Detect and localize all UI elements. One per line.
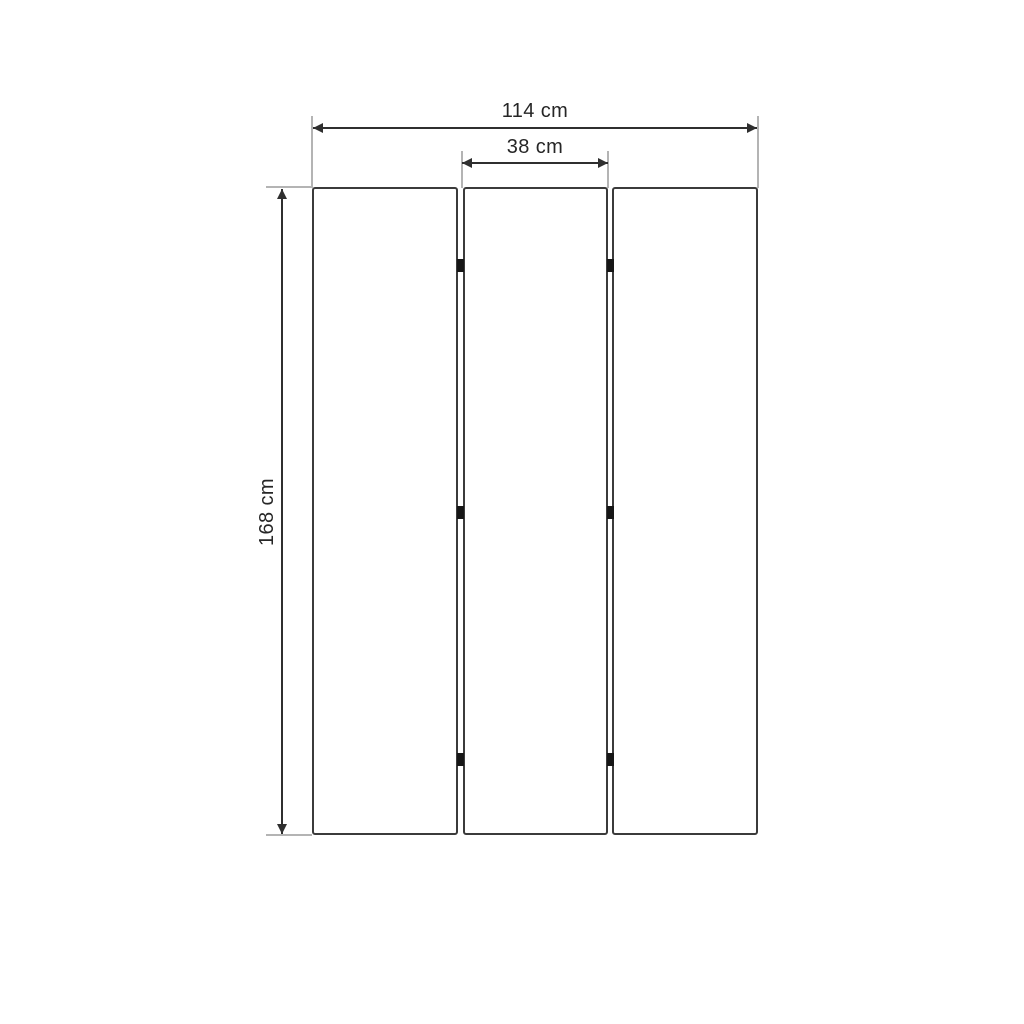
hinge-icon bbox=[607, 753, 614, 766]
arrow-right-icon bbox=[598, 158, 608, 168]
hinge-icon bbox=[457, 753, 464, 766]
hinge-icon bbox=[607, 506, 614, 519]
extension-line-total-width-right bbox=[757, 116, 759, 188]
extension-line-height-top bbox=[266, 186, 312, 188]
dimension-line-total-width bbox=[313, 127, 757, 129]
panel-left bbox=[312, 187, 458, 835]
arrow-down-icon bbox=[277, 824, 287, 834]
panel-center bbox=[463, 187, 608, 835]
arrow-left-icon bbox=[462, 158, 472, 168]
hinge-icon bbox=[457, 506, 464, 519]
dimension-line-height bbox=[281, 189, 283, 834]
hinge-icon bbox=[457, 259, 464, 272]
panel-width-label: 38 cm bbox=[462, 135, 608, 159]
extension-line-height-bottom bbox=[266, 834, 312, 836]
arrow-left-icon bbox=[313, 123, 323, 133]
panel-right bbox=[612, 187, 758, 835]
arrow-right-icon bbox=[747, 123, 757, 133]
height-label: 168 cm bbox=[255, 462, 279, 562]
arrow-up-icon bbox=[277, 189, 287, 199]
dimension-diagram: 114 cm 38 cm 168 cm bbox=[0, 0, 1024, 1024]
dimension-line-panel-width bbox=[462, 162, 608, 164]
hinge-icon bbox=[607, 259, 614, 272]
total-width-label: 114 cm bbox=[313, 99, 757, 123]
